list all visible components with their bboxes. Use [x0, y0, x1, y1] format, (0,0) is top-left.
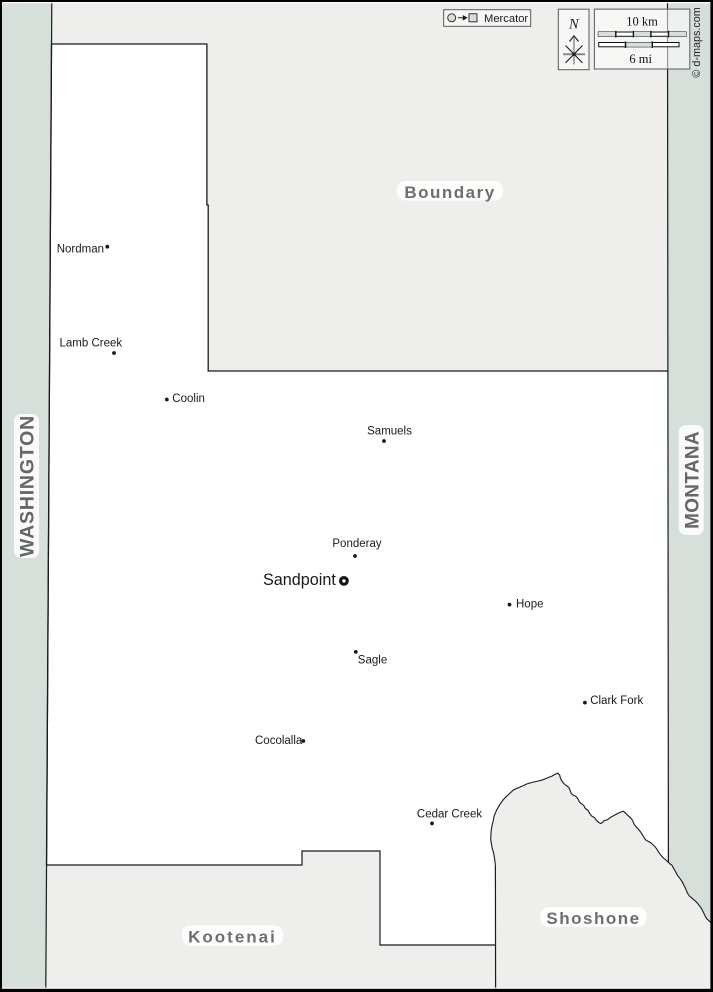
svg-text:N: N — [568, 16, 580, 32]
svg-text:Cedar Creek: Cedar Creek — [417, 808, 482, 820]
svg-text:MONTANA: MONTANA — [682, 431, 703, 529]
svg-text:Cocolalla: Cocolalla — [255, 735, 303, 747]
svg-text:Mercator: Mercator — [484, 13, 528, 25]
svg-text:Coolin: Coolin — [172, 393, 205, 405]
svg-text:Samuels: Samuels — [367, 426, 412, 438]
svg-text:Hope: Hope — [516, 598, 544, 610]
svg-text:Clark Fork: Clark Fork — [590, 695, 643, 707]
svg-text:© d-maps.com: © d-maps.com — [691, 7, 703, 77]
svg-text:6 mi: 6 mi — [629, 52, 652, 66]
svg-text:Sagle: Sagle — [358, 654, 387, 666]
svg-text:10 km: 10 km — [626, 15, 658, 29]
svg-text:Boundary: Boundary — [404, 183, 495, 202]
svg-text:Sandpoint: Sandpoint — [263, 571, 336, 589]
svg-text:Ponderay: Ponderay — [332, 538, 381, 550]
svg-text:Lamb Creek: Lamb Creek — [60, 338, 123, 350]
svg-text:Shoshone: Shoshone — [546, 909, 640, 928]
svg-text:WASHINGTON: WASHINGTON — [17, 415, 39, 557]
svg-text:Kootenai: Kootenai — [188, 928, 277, 947]
svg-text:Nordman: Nordman — [57, 244, 104, 256]
